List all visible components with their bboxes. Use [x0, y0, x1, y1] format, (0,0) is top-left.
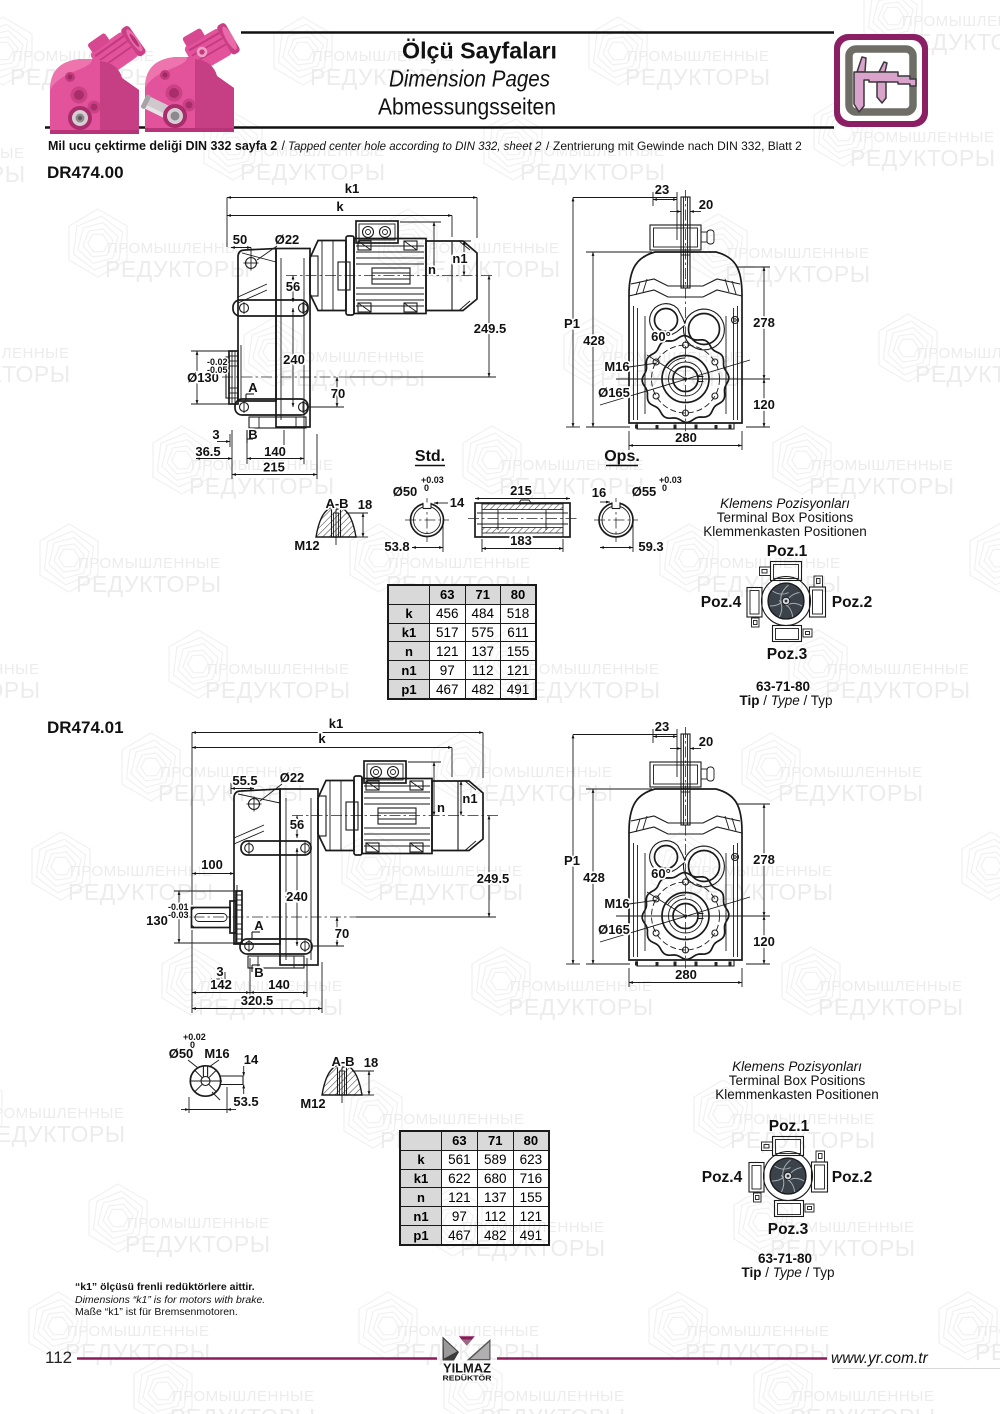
svg-text:Mil ucu çektirme deliği DIN 33: Mil ucu çektirme deliği DIN 332 sayfa 2 — [48, 139, 277, 153]
svg-text:Abmessungsseiten: Abmessungsseiten — [378, 94, 556, 120]
svg-text:“k1” ölçüsü frenli redüktörler: “k1” ölçüsü frenli redüktörlere aittir. — [75, 1281, 255, 1293]
svg-text:DR474.00: DR474.00 — [47, 163, 124, 182]
svg-text:Poz.1: Poz.1 — [769, 1118, 810, 1135]
svg-text:Ø50: Ø50 — [393, 484, 418, 499]
svg-text:53.8: 53.8 — [384, 539, 409, 554]
svg-text:Ops.: Ops. — [604, 448, 640, 465]
svg-text:215: 215 — [510, 483, 532, 498]
svg-text:A: A — [248, 380, 258, 395]
svg-text:Poz.3: Poz.3 — [768, 1221, 809, 1238]
svg-text:Ø50: Ø50 — [169, 1046, 194, 1061]
svg-text:Klemens Pozisyonları: Klemens Pozisyonları — [720, 496, 850, 511]
svg-text:14: 14 — [450, 495, 465, 510]
svg-text:Tip / Type / Typ: Tip / Type / Typ — [739, 693, 832, 708]
svg-text:63-71-80: 63-71-80 — [758, 1251, 812, 1266]
svg-text:112: 112 — [45, 1348, 72, 1367]
svg-text:n: n — [437, 800, 445, 815]
svg-text:320.5: 320.5 — [241, 993, 274, 1008]
svg-text:3: 3 — [212, 427, 219, 442]
svg-text:Klemmenkasten Positionen: Klemmenkasten Positionen — [715, 1087, 879, 1102]
svg-text:-0.05: -0.05 — [207, 365, 228, 375]
svg-text:REDÜKTÖR: REDÜKTÖR — [443, 1374, 493, 1383]
svg-text:240: 240 — [283, 352, 305, 367]
svg-text:B: B — [254, 965, 263, 980]
svg-text:k1: k1 — [329, 716, 343, 731]
svg-text:M16: M16 — [204, 1046, 229, 1061]
svg-text:Poz.4: Poz.4 — [701, 594, 742, 611]
svg-text:55.5: 55.5 — [232, 773, 257, 788]
svg-text:142: 142 — [210, 977, 232, 992]
svg-text:/: / — [282, 139, 286, 153]
svg-text:140: 140 — [268, 977, 290, 992]
svg-text:Dimension Pages: Dimension Pages — [389, 66, 550, 92]
svg-text:B: B — [248, 427, 257, 442]
svg-text:249.5: 249.5 — [477, 871, 510, 886]
svg-text:Terminal Box Positions: Terminal Box Positions — [717, 510, 854, 525]
svg-text:www.yr.com.tr: www.yr.com.tr — [831, 1350, 929, 1367]
svg-text:Klemens Pozisyonları: Klemens Pozisyonları — [732, 1059, 862, 1074]
svg-text:56: 56 — [290, 817, 304, 832]
svg-text:56: 56 — [286, 279, 300, 294]
svg-text:140: 140 — [264, 444, 286, 459]
svg-text:14: 14 — [244, 1052, 259, 1067]
svg-text:Ø55: Ø55 — [632, 484, 657, 499]
svg-text:215: 215 — [263, 460, 285, 475]
svg-text:k: k — [318, 731, 326, 746]
svg-text:70: 70 — [335, 926, 349, 941]
svg-text:Tip / Type / Typ: Tip / Type / Typ — [741, 1265, 834, 1280]
svg-text:n1: n1 — [452, 251, 467, 266]
svg-text:249.5: 249.5 — [474, 321, 507, 336]
svg-text:Poz.4: Poz.4 — [702, 1169, 743, 1186]
svg-text:Std.: Std. — [415, 448, 445, 465]
svg-text:36.5: 36.5 — [195, 444, 220, 459]
svg-text:Klemmenkasten Positionen: Klemmenkasten Positionen — [703, 524, 867, 539]
svg-text:Ölçü Sayfaları: Ölçü Sayfaları — [402, 38, 557, 64]
svg-text:0: 0 — [662, 483, 667, 493]
svg-text:A: A — [254, 918, 264, 933]
svg-text:59.3: 59.3 — [638, 539, 663, 554]
svg-text:Zentrierung mit Gewinde nach D: Zentrierung mit Gewinde nach DIN 332, Bl… — [553, 139, 802, 153]
svg-text:Maße “k1” ist für Bremsenmotor: Maße “k1” ist für Bremsenmotoren. — [75, 1306, 238, 1318]
svg-text:n: n — [428, 262, 436, 277]
svg-text:Poz.2: Poz.2 — [832, 594, 872, 611]
svg-text:50: 50 — [233, 232, 247, 247]
svg-text:k: k — [336, 199, 344, 214]
svg-text:Dimensions “k1” is for motors: Dimensions “k1” is for motors with brake… — [75, 1294, 265, 1306]
svg-text:Terminal Box Positions: Terminal Box Positions — [729, 1073, 866, 1088]
svg-text:0: 0 — [424, 483, 429, 493]
svg-text:70: 70 — [331, 386, 345, 401]
svg-text:16: 16 — [592, 485, 606, 500]
svg-text:n1: n1 — [462, 791, 477, 806]
svg-text:Tapped center hole according t: Tapped center hole according to DIN 332,… — [288, 141, 542, 153]
svg-text:DR474.01: DR474.01 — [47, 718, 124, 737]
svg-text:100: 100 — [201, 857, 223, 872]
svg-text:Ø22: Ø22 — [280, 770, 305, 785]
svg-text:Ø22: Ø22 — [275, 232, 300, 247]
svg-text:130: 130 — [146, 913, 168, 928]
svg-text:Poz.3: Poz.3 — [767, 646, 808, 663]
svg-text:183: 183 — [510, 533, 532, 548]
svg-text:53.5: 53.5 — [233, 1094, 258, 1109]
svg-text:k1: k1 — [345, 181, 359, 196]
svg-text:Poz.2: Poz.2 — [832, 1169, 872, 1186]
svg-text:Poz.1: Poz.1 — [767, 543, 808, 560]
svg-text:63-71-80: 63-71-80 — [756, 679, 810, 694]
svg-text:-0.03: -0.03 — [168, 910, 189, 920]
svg-text:240: 240 — [286, 889, 308, 904]
